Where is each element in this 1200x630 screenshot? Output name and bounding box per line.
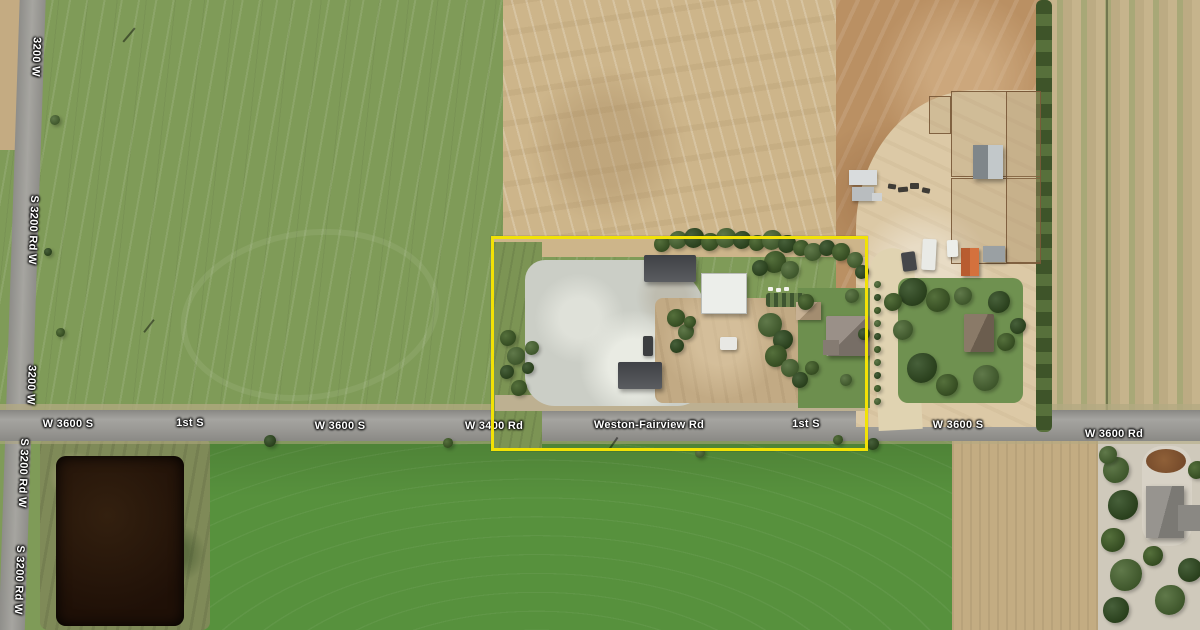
road-label-vertical: 3200 W: [29, 37, 42, 77]
shed: [872, 193, 882, 201]
road-label-vertical: S 3200 Rd W: [12, 545, 26, 615]
tree: [1188, 461, 1200, 479]
metal-barn: [973, 145, 1003, 179]
tree: [874, 385, 881, 392]
pond: [56, 456, 184, 626]
satellite-map[interactable]: W 3600 S1st SW 3600 SW 3400 RdWeston-Fai…: [0, 0, 1200, 630]
road-label-horizontal: W 3600 S: [43, 418, 94, 430]
field-striped-east: [1048, 0, 1200, 428]
parcel-highlight: [491, 236, 868, 451]
road-label-horizontal: W 3600 S: [315, 420, 366, 432]
tree: [874, 281, 881, 288]
tree: [874, 359, 881, 366]
tree: [874, 294, 881, 301]
flatbed-trailer: [901, 251, 918, 272]
road-label-vertical: 3200 W: [24, 365, 37, 405]
orange-roof-shed: [961, 248, 979, 276]
tree: [874, 333, 881, 340]
rv-trailer: [921, 239, 937, 271]
pickup-truck: [947, 240, 959, 257]
tree: [1178, 558, 1200, 582]
house-southeast-wing: [1178, 505, 1200, 531]
road-label-horizontal: W 3600 Rd: [1085, 428, 1143, 440]
tree: [874, 372, 881, 379]
tree: [874, 346, 881, 353]
irrigation-line: [1106, 0, 1108, 428]
tree: [56, 328, 65, 337]
tree: [874, 307, 881, 314]
round-garden-bed: [1146, 449, 1186, 473]
shed: [852, 187, 874, 201]
farm-equipment: [910, 183, 919, 189]
corral-pen: [929, 96, 951, 134]
farm-equipment: [888, 183, 897, 189]
gray-shed: [983, 246, 1005, 262]
field-tan-south: [952, 440, 1102, 630]
farmhouse-east: [964, 314, 994, 352]
tree: [874, 320, 881, 327]
road-label-horizontal: W 3600 S: [933, 419, 984, 431]
tree: [874, 398, 881, 405]
corral-pen: [1006, 91, 1041, 263]
field-tan-north: [503, 0, 848, 242]
road-label-vertical: S 3200 Rd W: [26, 195, 40, 265]
farm-equipment: [898, 186, 908, 192]
road-label-vertical: S 3200 Rd W: [16, 438, 30, 508]
shed: [849, 170, 877, 185]
field-green-south: [188, 440, 963, 630]
road-label-horizontal: 1st S: [176, 417, 204, 429]
